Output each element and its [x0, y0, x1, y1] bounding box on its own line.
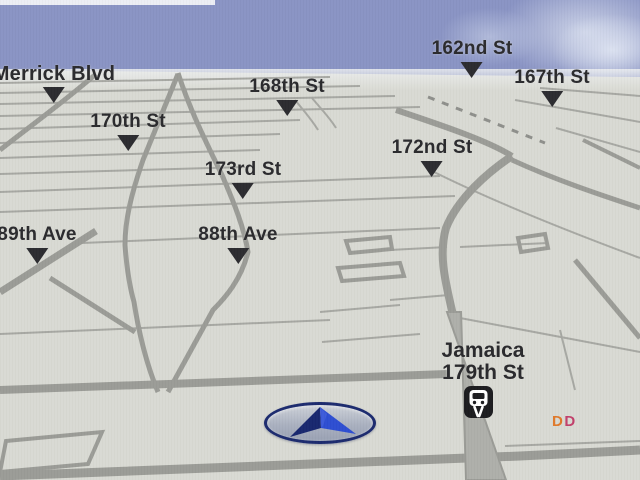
station-label-line1: Jamaica: [442, 340, 525, 362]
train-station-icon[interactable]: [464, 386, 493, 418]
nav-map-screen[interactable]: Merrick Blvd170th St168th St162nd St167t…: [0, 0, 640, 480]
dunkin-poi-icon[interactable]: DD: [552, 414, 577, 429]
poi-letter: D: [552, 413, 564, 430]
poi-letter: D: [564, 413, 576, 430]
train-glyph: [464, 386, 493, 418]
minor-roads: [0, 77, 640, 458]
station-label: Jamaica 179th St: [442, 340, 525, 384]
station-label-line2: 179th St: [442, 362, 525, 384]
current-position-indicator: [264, 402, 376, 444]
rail-line: [428, 97, 545, 143]
position-arrow-icon: [267, 405, 373, 441]
